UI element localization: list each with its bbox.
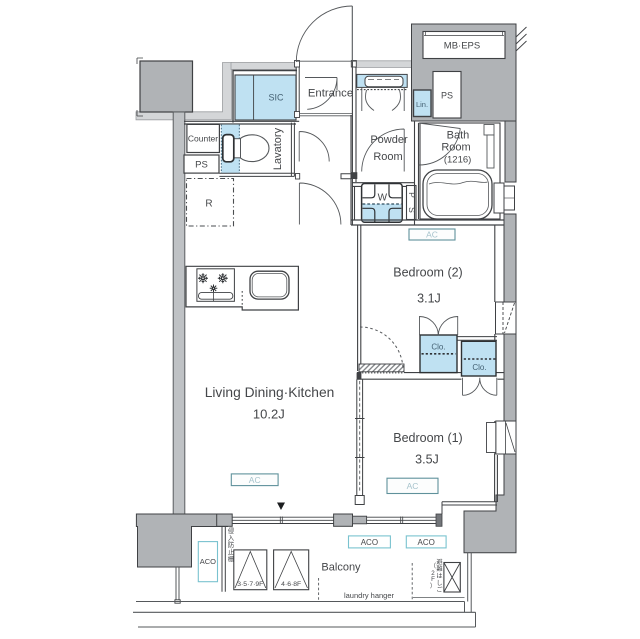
svg-text:止: 止 [228,547,235,556]
svg-text:Powder: Powder [370,134,408,146]
svg-text:AC: AC [249,475,261,485]
svg-text:AC: AC [426,230,438,240]
svg-text:（: （ [430,563,436,570]
svg-text:Counter: Counter [188,134,218,144]
svg-text:3·5·7·9F: 3·5·7·9F [237,581,263,588]
svg-text:10.2J: 10.2J [253,407,285,422]
svg-text:4·6·8F: 4·6·8F [281,581,301,588]
svg-text:Bedroom (2): Bedroom (2) [393,266,462,280]
svg-text:Room: Room [373,151,402,163]
svg-text:Clo.: Clo. [472,363,486,372]
svg-text:MB·EPS: MB·EPS [444,41,480,52]
svg-text:R: R [205,199,212,210]
svg-text:laundry hanger: laundry hanger [344,591,395,600]
svg-text:AC: AC [407,481,419,491]
svg-text:ACO: ACO [418,538,435,547]
svg-text:Lin.: Lin. [416,100,428,109]
svg-text:Room: Room [441,142,470,154]
svg-text:Bath: Bath [447,130,470,142]
svg-text:Lavatory: Lavatory [272,127,284,170]
svg-text:Bedroom (1): Bedroom (1) [393,431,462,445]
svg-text:Entrance: Entrance [308,88,353,100]
svg-text:ご: ご [436,586,443,594]
svg-text:し: し [436,580,442,587]
svg-text:ACO: ACO [200,557,216,566]
svg-text:PS: PS [195,160,208,171]
svg-text:F: F [431,576,435,583]
svg-text:SIC: SIC [268,93,284,103]
svg-text:侵: 侵 [228,526,235,535]
svg-text:ACO: ACO [361,538,378,547]
svg-text:難: 難 [436,565,442,573]
svg-text:S: S [407,207,417,213]
svg-text:W: W [378,193,388,204]
svg-text:）: ） [430,583,436,590]
svg-text:入: 入 [228,535,235,542]
svg-text:3.1J: 3.1J [417,292,441,306]
svg-text:Balcony: Balcony [321,562,361,574]
svg-text:Living Dining·Kitchen: Living Dining·Kitchen [205,385,335,400]
svg-text:P: P [407,192,417,198]
svg-text:(1216): (1216) [444,155,471,166]
svg-text:PS: PS [441,91,453,101]
svg-text:3.5J: 3.5J [415,453,439,467]
svg-text:栅: 栅 [228,554,235,563]
svg-text:避: 避 [436,558,442,566]
svg-text:Clo.: Clo. [431,343,445,352]
svg-text:は: は [436,573,442,580]
svg-text:防: 防 [228,540,235,549]
